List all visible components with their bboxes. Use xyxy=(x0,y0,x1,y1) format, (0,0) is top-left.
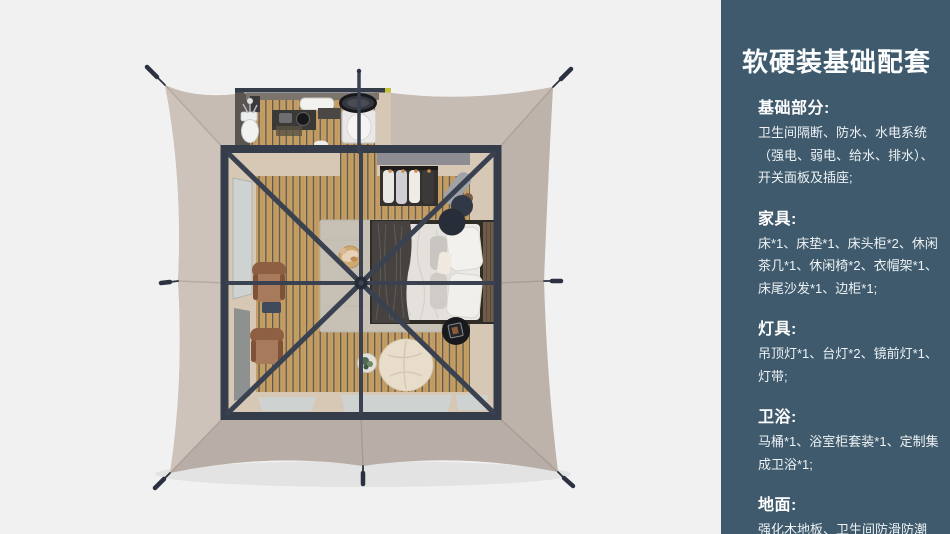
section-basics-heading: 基础部分: xyxy=(758,94,939,118)
bathroom-annex xyxy=(235,88,391,152)
annex-corner-marker xyxy=(385,88,391,93)
side-counter xyxy=(318,108,340,119)
section-furniture-body: 床*1、床垫*1、床头柜*2、休闲茶几*1、休闲椅*2、衣帽架*1、床尾沙发*1… xyxy=(758,233,939,301)
clothes-rack xyxy=(380,166,438,206)
garment-2 xyxy=(396,170,407,204)
tent-topview-panel xyxy=(0,0,721,534)
section-basics-body: 卫生间隔断、防水、水电系统（强电、弱电、给水、排水）、开关面板及插座; xyxy=(758,122,939,190)
guy-stake-top-left xyxy=(147,67,165,85)
guy-stake-left-mid xyxy=(161,281,178,283)
side-cabinet xyxy=(377,152,470,165)
section-flooring-heading: 地面: xyxy=(758,491,939,515)
headboard xyxy=(483,222,494,322)
side-table-tray xyxy=(442,317,470,345)
window-bottom-1 xyxy=(258,397,316,411)
window-left-upper xyxy=(233,178,252,299)
sidebar-title: 软硬装基础配套 xyxy=(742,42,938,79)
section-furniture-heading: 家具: xyxy=(758,205,939,229)
section-flooring: 地面: 强化木地板、卫生间防滑防潮石塑板; xyxy=(758,491,939,534)
armchair-2 xyxy=(250,328,284,364)
section-bathroom: 卫浴: 马桶*1、浴室柜套装*1、定制集成卫浴*1; xyxy=(758,403,939,476)
pouf-2 xyxy=(439,209,466,236)
guy-stake-top-right xyxy=(553,69,571,87)
window-left-lower xyxy=(234,308,250,401)
tent-topview-render xyxy=(0,0,721,534)
section-basics: 基础部分: 卫生间隔断、防水、水电系统（强电、弱电、给水、排水）、开关面板及插座… xyxy=(758,94,939,190)
garment-4 xyxy=(422,170,434,204)
section-lighting-heading: 灯具: xyxy=(758,315,939,339)
window-bottom-2 xyxy=(341,395,452,412)
section-bathroom-heading: 卫浴: xyxy=(758,403,939,427)
annex-right-wall xyxy=(375,92,391,152)
pillow-large-2 xyxy=(446,272,483,318)
garment-3 xyxy=(409,170,420,203)
annex-top-frame xyxy=(235,88,391,93)
spec-sidebar: 软硬装基础配套 基础部分: 卫生间隔断、防水、水电系统（强电、弱电、给水、排水）… xyxy=(721,0,950,534)
garment-1 xyxy=(383,170,394,203)
section-flooring-body: 强化木地板、卫生间防滑防潮石塑板; xyxy=(758,519,939,534)
pillow-small-2 xyxy=(430,273,447,309)
canvas-facet-right xyxy=(497,87,558,472)
section-lighting-body: 吊顶灯*1、台灯*2、镜前灯*1、灯带; xyxy=(758,343,939,388)
section-furniture: 家具: 床*1、床垫*1、床头柜*2、休闲茶几*1、休闲椅*2、衣帽架*1、床尾… xyxy=(758,205,939,301)
walkway xyxy=(340,152,377,178)
canvas-facet-left xyxy=(165,85,225,473)
section-bathroom-body: 马桶*1、浴室柜套装*1、定制集成卫浴*1; xyxy=(758,431,939,476)
spec-sections: 基础部分: 卫生间隔断、防水、水电系统（强电、弱电、给水、排水）、开关面板及插座… xyxy=(758,94,939,534)
chair-side-table xyxy=(262,302,281,313)
section-lighting: 灯具: 吊顶灯*1、台灯*2、镜前灯*1、灯带; xyxy=(758,315,939,388)
